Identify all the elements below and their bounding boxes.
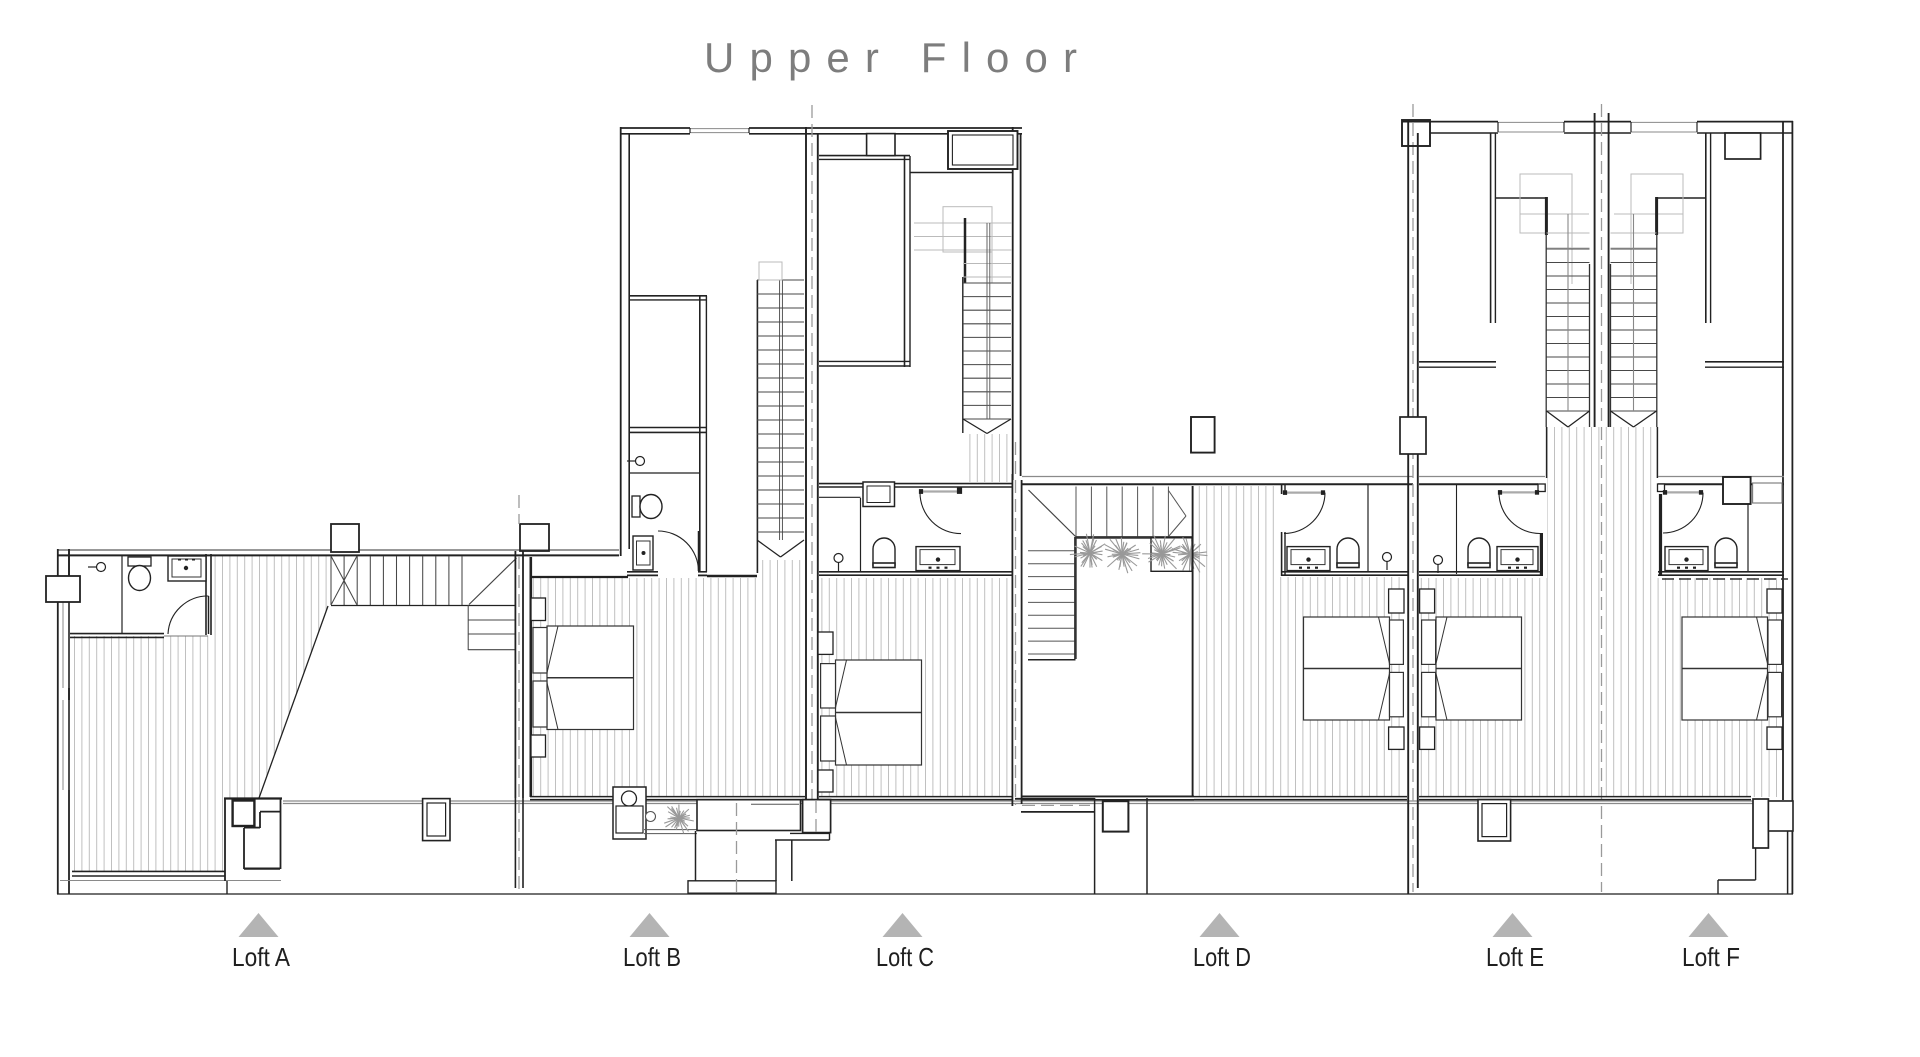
svg-text:Loft A: Loft A xyxy=(232,942,291,972)
svg-text:Loft C: Loft C xyxy=(876,942,934,972)
svg-text:Loft E: Loft E xyxy=(1486,942,1544,972)
svg-text:Loft D: Loft D xyxy=(1193,942,1251,972)
svg-text:Loft B: Loft B xyxy=(623,942,681,972)
svg-text:Loft F: Loft F xyxy=(1682,942,1740,972)
